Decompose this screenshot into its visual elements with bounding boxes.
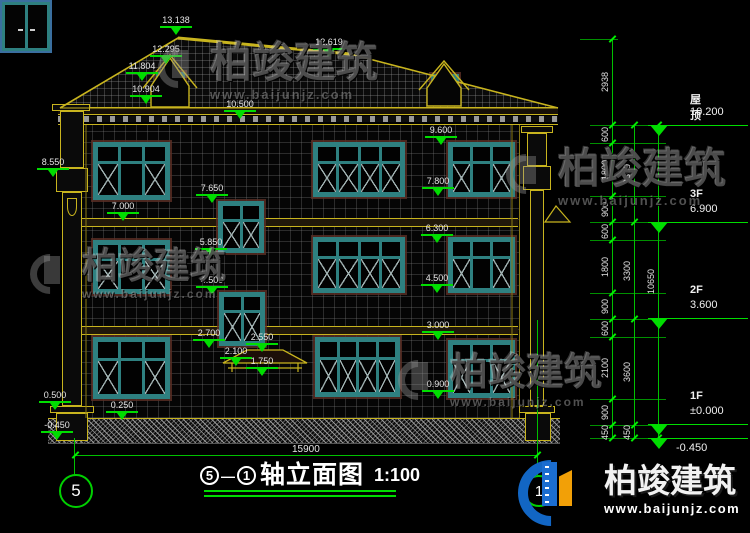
elevation-marker-value: 10.500 bbox=[220, 100, 260, 109]
elevation-marker: 11.804 bbox=[122, 62, 162, 81]
elevation-marker: 0.900 bbox=[418, 380, 458, 399]
title-underline-2 bbox=[204, 495, 396, 497]
elevation-marker: 5.850 bbox=[191, 238, 231, 257]
chain-dimension-value: 1800 bbox=[599, 148, 611, 192]
chain-dimension-value: 10650 bbox=[645, 259, 657, 303]
elevation-marker-value: 2.550 bbox=[242, 333, 282, 342]
title-separator: — bbox=[221, 468, 235, 484]
level-elevation-value: 3.600 bbox=[690, 299, 718, 311]
elevation-marker: 7.800 bbox=[418, 177, 458, 196]
elevation-marker: 1.750 bbox=[242, 357, 282, 376]
title-underline-1 bbox=[204, 490, 396, 492]
title-name: 轴立面图 bbox=[260, 463, 364, 488]
level-elevation-value: ±0.000 bbox=[690, 405, 724, 417]
elevation-marker: 4.500 bbox=[192, 276, 232, 295]
title-scale: 1:100 bbox=[374, 465, 420, 486]
chain-dimension-value: 3600 bbox=[621, 350, 633, 394]
level-triangle bbox=[650, 222, 668, 233]
level-triangle bbox=[650, 438, 668, 449]
floor-label: 1F bbox=[690, 390, 703, 402]
chain-dimension-value: 3300 bbox=[621, 152, 633, 196]
elevation-marker: 13.138 bbox=[156, 16, 196, 35]
elevation-marker-value: 0.900 bbox=[418, 380, 458, 389]
elevation-marker-value: 2.100 bbox=[216, 347, 256, 356]
elevation-marker-value: 6.300 bbox=[417, 224, 457, 233]
floor-label: 3F bbox=[690, 188, 703, 200]
axis-bubble-5: 5 bbox=[59, 474, 93, 508]
title-axis-end: 1 bbox=[237, 466, 256, 485]
elevation-marker-value: 9.600 bbox=[421, 126, 461, 135]
elevation-marker: 7.650 bbox=[192, 184, 232, 203]
company-logo: 柏竣建筑 www.baijunjz.com bbox=[516, 450, 740, 530]
elevation-marker-value: 11.804 bbox=[122, 62, 162, 71]
level-triangle bbox=[650, 125, 668, 136]
elevation-marker: 2.700 bbox=[189, 329, 229, 348]
company-logo-icon bbox=[516, 450, 596, 530]
total-width-dimension: 15900 bbox=[292, 444, 320, 455]
elevation-marker-value: 1.750 bbox=[242, 357, 282, 366]
elevation-marker: 7.000 bbox=[103, 202, 143, 221]
elevation-marker-value: -0.450 bbox=[37, 421, 77, 430]
elevation-marker: -0.450 bbox=[37, 421, 77, 440]
elevation-marker-value: 5.850 bbox=[191, 238, 231, 247]
company-logo-brand: 柏竣建筑 bbox=[604, 464, 740, 497]
elevation-marker: 10.500 bbox=[220, 100, 260, 119]
elevation-marker-value: 12.295 bbox=[146, 45, 186, 54]
drawing-title: 5 — 1 轴立面图 1:100 bbox=[200, 463, 420, 488]
elevation-marker: 12.619 bbox=[309, 38, 349, 57]
level-triangle bbox=[650, 318, 668, 329]
chain-dimension-value: 600 bbox=[599, 306, 611, 350]
elevation-marker-value: 2.700 bbox=[189, 329, 229, 338]
elevation-marker: 10.904 bbox=[126, 85, 166, 104]
elevation-marker: 0.500 bbox=[35, 391, 75, 410]
elevation-marker-value: 13.138 bbox=[156, 16, 196, 25]
elevation-marker: 8.550 bbox=[33, 158, 73, 177]
elevation-marker-value: 4.500 bbox=[417, 274, 457, 283]
elevation-marker: 6.300 bbox=[417, 224, 457, 243]
elevation-marker-value: 7.650 bbox=[192, 184, 232, 193]
elevation-marker: 0.250 bbox=[102, 401, 142, 420]
elevation-marker-value: 0.500 bbox=[35, 391, 75, 400]
chain-dimension-value: 2938 bbox=[599, 60, 611, 104]
chain-dimension-value: 2100 bbox=[599, 346, 611, 390]
elevation-marker-value: 12.619 bbox=[309, 38, 349, 47]
elevation-marker-value: 4.500 bbox=[192, 276, 232, 285]
cad-elevation-drawing: 13.13812.29511.80410.90412.61910.5008.55… bbox=[0, 0, 750, 533]
title-axis-start: 5 bbox=[200, 466, 219, 485]
elevation-marker-value: 7.800 bbox=[418, 177, 458, 186]
floor-label: 2F bbox=[690, 284, 703, 296]
elevation-marker: 4.500 bbox=[417, 274, 457, 293]
elevation-marker-value: 7.000 bbox=[103, 202, 143, 211]
chain-dimension-value: 450 bbox=[621, 410, 633, 454]
company-logo-url: www.baijunjz.com bbox=[604, 501, 740, 516]
elevation-marker-value: 0.250 bbox=[102, 401, 142, 410]
elevation-marker-value: 3.000 bbox=[418, 321, 458, 330]
level-triangle bbox=[650, 424, 668, 435]
elevation-marker: 3.000 bbox=[418, 321, 458, 340]
level-elevation-value: 10.200 bbox=[690, 106, 724, 118]
chain-dimension-value: 3300 bbox=[621, 249, 633, 293]
elevation-marker: 9.600 bbox=[421, 126, 461, 145]
elevation-marker-value: 8.550 bbox=[33, 158, 73, 167]
chain-dimension-value: 1800 bbox=[599, 245, 611, 289]
chain-dimension-value: 450 bbox=[599, 410, 611, 454]
level-elevation-value: 6.900 bbox=[690, 203, 718, 215]
elevation-marker-value: 10.904 bbox=[126, 85, 166, 94]
